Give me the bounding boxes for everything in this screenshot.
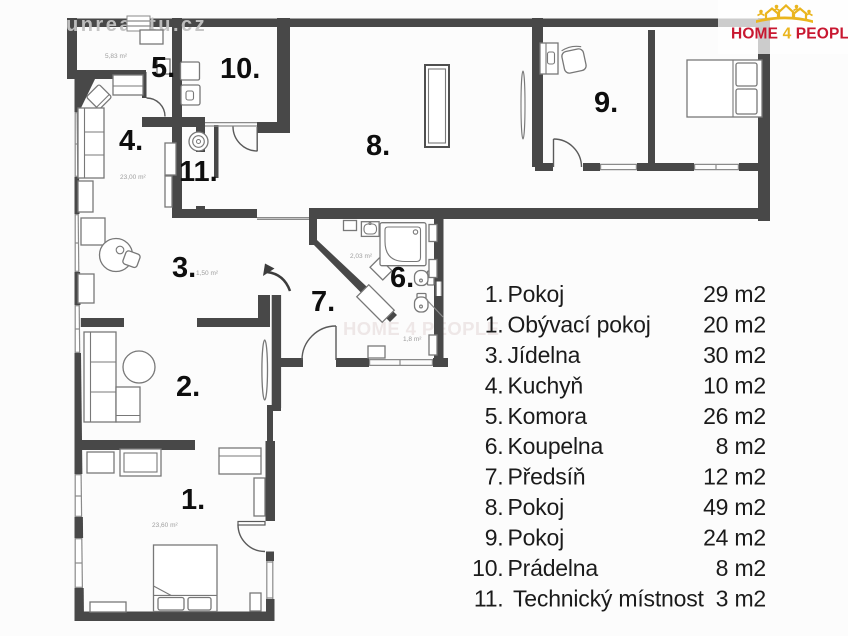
svg-text:1.: 1.: [485, 281, 504, 307]
svg-text:9.: 9.: [485, 525, 504, 551]
svg-text:10.: 10.: [472, 555, 503, 581]
svg-text:23,00 m²: 23,00 m²: [120, 174, 146, 181]
svg-text:26 m2: 26 m2: [703, 403, 766, 429]
svg-text:3 m2: 3 m2: [716, 586, 766, 612]
svg-text:1.: 1.: [181, 484, 205, 516]
svg-text:7.: 7.: [485, 464, 504, 490]
svg-text:Předsíň: Předsíň: [508, 464, 586, 490]
svg-text:1,50 m²: 1,50 m²: [196, 270, 219, 277]
svg-text:5,83 m²: 5,83 m²: [105, 53, 128, 60]
svg-text:2,03 m²: 2,03 m²: [350, 253, 373, 260]
svg-text:Technický místnost: Technický místnost: [513, 586, 704, 612]
svg-text:3.: 3.: [485, 342, 504, 368]
svg-text:Jídelna: Jídelna: [508, 342, 581, 368]
svg-text:1,8 m²: 1,8 m²: [403, 336, 422, 343]
svg-text:8.: 8.: [366, 130, 390, 162]
svg-text:1.: 1.: [485, 311, 504, 337]
svg-text:49 m2: 49 m2: [703, 494, 766, 520]
svg-text:4.: 4.: [119, 125, 143, 157]
svg-text:Prádelna: Prádelna: [508, 555, 599, 581]
svg-text:11.: 11.: [179, 156, 218, 188]
svg-text:9.: 9.: [594, 87, 618, 119]
svg-text:Komora: Komora: [508, 403, 588, 429]
svg-text:29 m2: 29 m2: [703, 281, 766, 307]
svg-text:6.: 6.: [485, 433, 504, 459]
svg-text:10.: 10.: [220, 53, 260, 85]
svg-text:6.: 6.: [390, 262, 414, 294]
svg-text:2.: 2.: [176, 371, 200, 403]
svg-text:8 m2: 8 m2: [716, 433, 766, 459]
svg-text:Pokoj: Pokoj: [508, 281, 565, 307]
svg-text:20 m2: 20 m2: [703, 311, 766, 337]
svg-text:11.: 11.: [474, 586, 504, 612]
svg-text:Kuchyň: Kuchyň: [508, 372, 584, 398]
svg-text:Pokoj: Pokoj: [508, 525, 565, 551]
svg-text:7.: 7.: [311, 286, 335, 318]
svg-text:Pokoj: Pokoj: [508, 494, 565, 520]
svg-text:24 m2: 24 m2: [703, 525, 766, 551]
svg-text:5.: 5.: [485, 403, 504, 429]
svg-text:8.: 8.: [485, 494, 504, 520]
svg-text:30 m2: 30 m2: [703, 342, 766, 368]
svg-text:8 m2: 8 m2: [716, 555, 766, 581]
svg-text:Koupelna: Koupelna: [508, 433, 604, 459]
svg-text:23,60 m²: 23,60 m²: [152, 522, 178, 529]
svg-text:3.: 3.: [172, 252, 196, 284]
svg-text:4.: 4.: [485, 372, 504, 398]
svg-text:Obývací pokoj: Obývací pokoj: [508, 311, 651, 337]
svg-text:HOME 4 PEOPLE: HOME 4 PEOPLE: [731, 26, 848, 43]
svg-text:12 m2: 12 m2: [703, 464, 766, 490]
svg-text:10 m2: 10 m2: [703, 372, 766, 398]
svg-text:5.: 5.: [151, 52, 175, 84]
